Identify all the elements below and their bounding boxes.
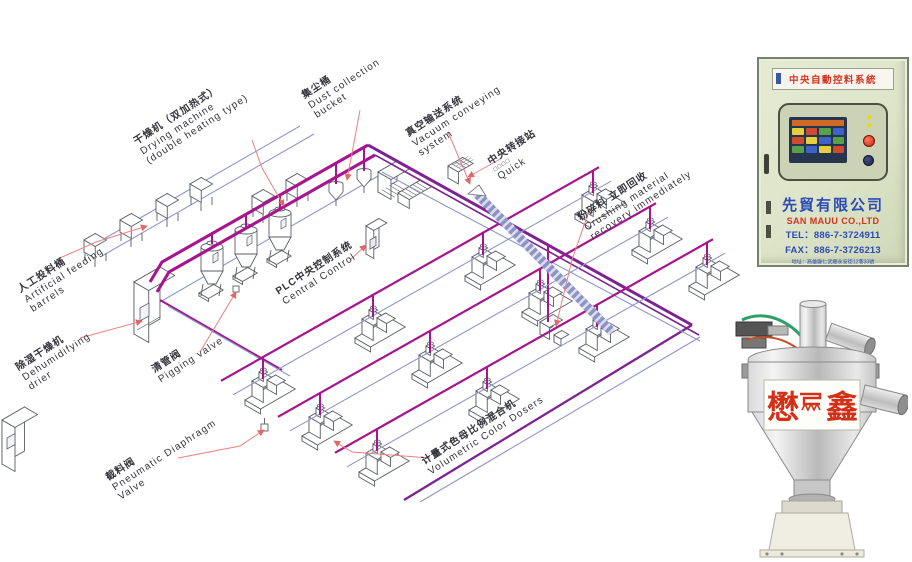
central-transfer-station — [448, 157, 474, 185]
brand-char-left: 懋 — [767, 389, 799, 425]
nameplate-mark-icon — [776, 73, 781, 84]
molding-machine — [302, 404, 352, 450]
control-cabinet-photo: 中央自動控料系統 先貿有限公司 SAN MAUU CO.,LTD TEL：886… — [757, 57, 909, 267]
screen-button[interactable] — [833, 128, 845, 135]
brand-char-right: 鑫 — [826, 389, 858, 425]
crusher — [540, 315, 569, 347]
left-machine — [2, 407, 38, 472]
indicator-led-icon — [867, 115, 872, 120]
screen-banner — [792, 120, 844, 126]
brand-plate: 懋 鑫 — [764, 380, 860, 430]
drying-hopper — [199, 241, 223, 302]
touchscreen[interactable] — [789, 117, 847, 163]
company-name-zh: 先貿有限公司 — [759, 194, 907, 215]
molding-machine — [689, 254, 739, 300]
door-hinge — [766, 201, 771, 214]
molding-machine — [632, 218, 682, 264]
screen-button[interactable] — [792, 128, 804, 135]
molding-machine — [412, 342, 462, 388]
company-fax: FAX：886-7-3726213 — [759, 242, 907, 256]
base-stand — [760, 501, 864, 557]
vacuum-receiver — [357, 169, 371, 194]
cabinet-title: 中央自動控料系統 — [789, 72, 877, 86]
screen-button[interactable] — [819, 137, 831, 144]
screen-button[interactable] — [806, 137, 818, 144]
company-tel: TEL：886-7-3724911 — [759, 227, 907, 241]
screen-button[interactable] — [806, 146, 818, 153]
pneumatic-valve-symbol — [261, 418, 268, 431]
feeding-barrel — [156, 194, 179, 228]
cabinet-nameplate: 中央自動控料系統 — [772, 68, 894, 90]
molding-machine — [359, 440, 409, 486]
catalog-page: 人工投料桶 Artificial feeding barrels 干燥机（双加热… — [0, 0, 912, 562]
molding-machine — [465, 244, 515, 290]
pigging-valve-symbol — [233, 286, 239, 292]
molding-machine — [355, 306, 405, 352]
door-handle — [764, 154, 769, 174]
system-diagram: 人工投料桶 Artificial feeding barrels 干燥机（双加热… — [0, 0, 740, 562]
hopper-loader-photo: 懋 鑫 — [712, 298, 908, 560]
red-pilot-light-icon — [863, 135, 875, 147]
screen-button[interactable] — [806, 128, 818, 135]
screen-button-grid — [792, 128, 844, 153]
door-hinge — [766, 225, 771, 238]
screen-button[interactable] — [792, 146, 804, 153]
hopper-body: 懋 鑫 — [742, 347, 908, 504]
touchscreen-bezel — [778, 103, 888, 181]
plc-cabinet — [366, 219, 387, 259]
cabinet-company-block: 先貿有限公司 SAN MAUU CO.,LTD TEL：886-7-372491… — [759, 194, 907, 266]
feeding-barrel — [120, 214, 143, 248]
screen-button[interactable] — [792, 137, 804, 144]
company-name-en: SAN MAUU CO.,LTD — [759, 216, 907, 226]
power-button[interactable] — [863, 155, 874, 166]
screen-button[interactable] — [833, 137, 845, 144]
screen-button[interactable] — [819, 128, 831, 135]
vacuum-receiver — [329, 182, 343, 207]
screen-button[interactable] — [819, 146, 831, 153]
screen-button[interactable] — [833, 146, 845, 153]
drying-hopper — [267, 207, 291, 268]
company-address: 地址：高雄縣仁武鄉永安街12巷33號 — [770, 258, 896, 266]
